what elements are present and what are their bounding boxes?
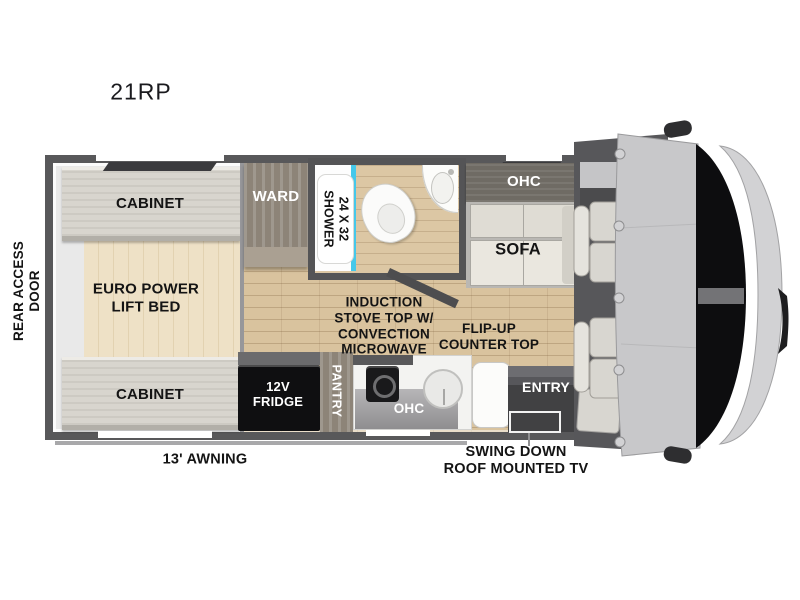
cabinet-top-label: CABINET [116,195,184,213]
kitchen-faucet [443,389,445,405]
cabinet-bottom-label: CABINET [116,386,184,404]
cab-front [568,118,790,466]
flip-up-counter-label: FLIP-UP COUNTER TOP [439,321,539,353]
ohc-kitchen-label: OHC [394,401,425,417]
floorplan-canvas: 21RP REAR ACCESS DOOR CABINET EURO POWER… [0,0,800,600]
fridge-upper-cabinet [238,352,320,365]
roof-tv-outline [509,411,561,433]
entry-label: ENTRY [522,379,570,395]
kitchen-note-label: INDUCTION STOVE TOP W/ CONVECTION MICROW… [334,294,433,357]
mirror-top-icon [663,119,693,139]
rear-access-door-label: REAR ACCESS DOOR [11,241,43,341]
fridge-label: 12V FRIDGE [253,379,303,409]
bottom-window-bedroom [98,431,212,438]
windshield-seam [698,288,744,304]
bottom-window-kitchen [366,430,430,436]
ward-label: WARD [253,188,300,206]
wardrobe-shelf [244,247,308,267]
burner-ring-icon [373,375,396,398]
cushion-split [523,205,524,237]
sink-faucet [448,169,454,175]
sofa-window [506,155,562,161]
kitchen-sink [423,369,463,409]
toilet-bowl [372,199,410,239]
roof-tv-label: SWING DOWN ROOF MOUNTED TV [444,444,589,478]
sink-basin [431,172,454,204]
ohc-sofa-label: OHC [507,173,541,191]
pantry-label: PANTRY [329,365,344,418]
cab-body-panel [615,134,701,456]
shower-label: 24 X 32 SHOWER [321,190,350,247]
sofa-label: SOFA [495,240,541,259]
sofa-back-cushions [470,204,576,238]
induction-stove-icon [366,366,399,402]
model-title: 21RP [110,79,172,106]
flip-up-counter [472,362,511,428]
awning-label: 13' AWNING [163,452,248,469]
bedroom-window-slider [103,162,217,171]
bedroom-window [96,155,224,161]
awning-bar [55,441,467,445]
lift-bed-label: EURO POWER LIFT BED [93,280,199,315]
